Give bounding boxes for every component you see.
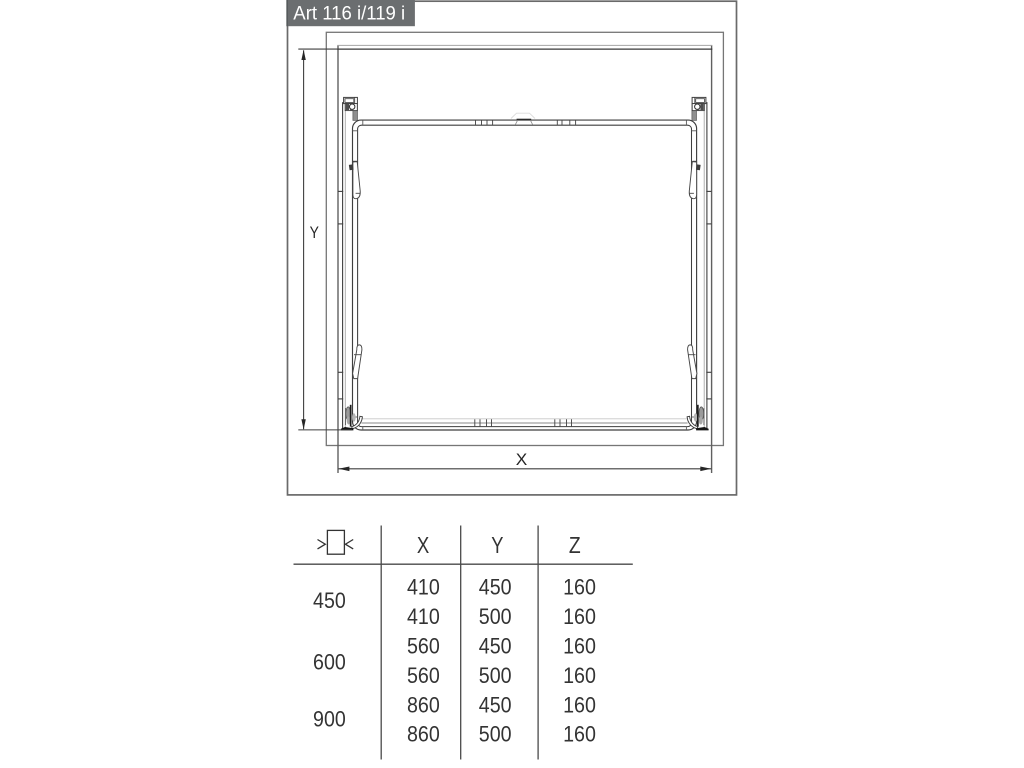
svg-text:X: X [417, 532, 430, 558]
svg-text:450: 450 [479, 692, 512, 717]
svg-text:860: 860 [407, 722, 440, 747]
svg-text:Art 116 i/119 i: Art 116 i/119 i [293, 4, 405, 25]
svg-text:160: 160 [563, 663, 596, 688]
svg-text:410: 410 [407, 604, 440, 629]
svg-text:860: 860 [407, 692, 440, 717]
svg-text:Y: Y [310, 223, 319, 242]
svg-text:560: 560 [407, 634, 440, 659]
svg-text:500: 500 [479, 663, 512, 688]
svg-text:450: 450 [479, 634, 512, 659]
svg-text:160: 160 [563, 722, 596, 747]
svg-text:450: 450 [313, 588, 346, 613]
svg-text:500: 500 [479, 604, 512, 629]
svg-text:160: 160 [563, 575, 596, 600]
svg-text:600: 600 [313, 650, 346, 675]
svg-text:410: 410 [407, 575, 440, 600]
svg-text:Y: Y [491, 532, 504, 558]
svg-text:160: 160 [563, 604, 596, 629]
svg-text:560: 560 [407, 663, 440, 688]
svg-text:160: 160 [563, 692, 596, 717]
svg-text:Z: Z [569, 532, 581, 558]
svg-text:500: 500 [479, 722, 512, 747]
svg-text:450: 450 [479, 575, 512, 600]
svg-text:900: 900 [313, 706, 346, 731]
svg-text:160: 160 [563, 634, 596, 659]
svg-text:X: X [516, 450, 528, 469]
